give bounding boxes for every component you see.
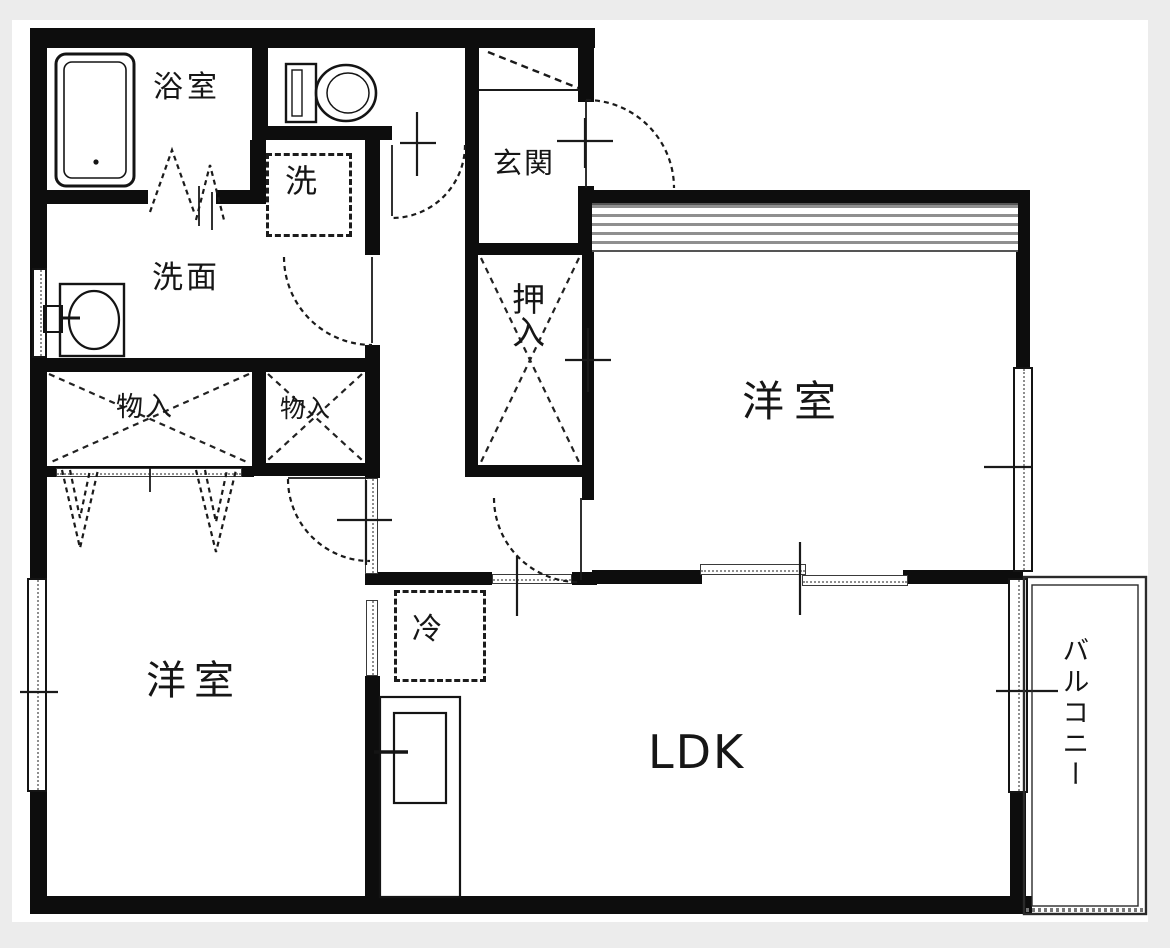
wall [365,140,380,255]
window [1008,578,1028,793]
storage-right-label: 物入 [280,396,330,422]
wall [30,358,375,372]
wall [47,190,148,204]
wall [465,465,583,477]
window [1013,367,1033,572]
balcony-label: バルコニー [1058,636,1086,896]
wall [250,140,266,204]
wall [1010,793,1026,904]
wall [30,896,1032,914]
bathroom-label: 浴室 [153,72,221,104]
wall [30,28,595,48]
wall [365,572,492,585]
sliding-door [700,564,806,575]
washroom-label: 洗面 [152,262,220,295]
louver-wall-band [592,203,1018,252]
wall [252,366,266,466]
wall [465,28,479,255]
storage-left-label: 物入 [116,394,174,422]
sliding-door [365,478,378,574]
wall [582,248,594,500]
wall [252,463,372,476]
wall [592,570,702,584]
ldk-label: LDK [648,728,745,776]
washer-label: 洗 [285,165,317,199]
sliding-door [366,600,378,676]
wall [1016,195,1030,367]
wall [903,570,1023,584]
wall [30,792,47,904]
wall [578,28,594,102]
floor-plan: 浴室 洗 洗面 玄関 押入 物入 物入 洋室 洋室 LDK 冷 バルコニー [0,0,1170,948]
window [32,268,47,358]
refrigerator-label: 冷 [412,614,442,646]
wall [592,190,1030,203]
western-room-upper-label: 洋室 [742,380,846,424]
window [27,578,47,792]
sliding-door [802,575,908,586]
wall [465,255,478,477]
sliding-door [492,574,572,584]
western-room-lower-label: 洋室 [146,660,242,702]
futon-closet-label: 押入 [508,282,543,452]
sliding-door [56,468,242,477]
entrance-label: 玄関 [493,148,555,178]
wall [465,243,592,255]
wall [258,126,392,140]
wall [365,676,380,898]
